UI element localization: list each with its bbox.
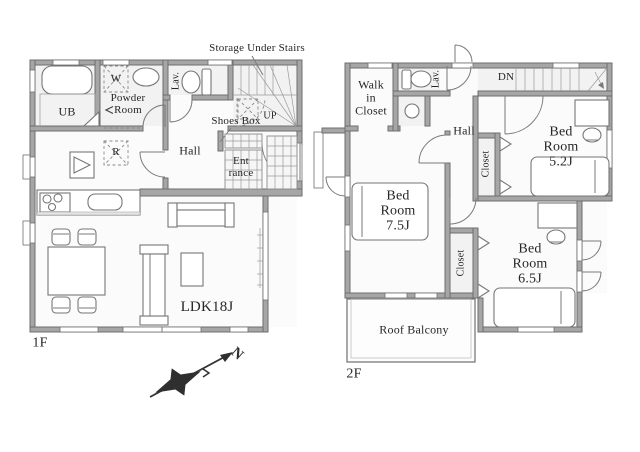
lav-label-2f: Lav. <box>432 70 443 88</box>
ub-label: UB <box>58 106 75 119</box>
floorplan-graphics <box>0 0 640 452</box>
bedroom-65-label: Bed Room 6.5J <box>512 241 547 286</box>
toilet-icon-2f <box>402 70 431 89</box>
sofa-horizontal-icon <box>168 203 234 227</box>
fridge-label: R <box>112 147 120 159</box>
closet-label-65: Closet <box>457 250 468 277</box>
bed-icon-65 <box>494 288 575 327</box>
storage-under-stairs-label: Storage Under Stairs <box>209 43 305 55</box>
floorplan-1f <box>23 56 323 332</box>
kitchen-counter-icon <box>37 190 140 215</box>
floorplan-image: Storage Under Stairs Lav. W UB Powder Ro… <box>0 0 640 452</box>
dn-label: DN <box>498 72 514 84</box>
roof-balcony-label: Roof Balcony <box>379 324 448 337</box>
entrance-label: Ent rance <box>229 156 254 180</box>
powder-room-label: Powder Room <box>111 93 146 117</box>
walk-in-closet-label: Walk in Closet <box>355 79 387 118</box>
sink-icon-2f <box>405 104 419 118</box>
up-label: UP <box>263 112 276 123</box>
porch-tiles <box>267 136 297 189</box>
bathtub-icon <box>42 66 92 94</box>
toilet-icon-1f <box>182 69 211 95</box>
floor2-label: 2F <box>346 366 361 381</box>
hall-label-1f: Hall <box>179 145 200 158</box>
ldk-label: LDK18J <box>181 299 234 315</box>
coffee-table-icon <box>181 253 203 286</box>
basin-icon <box>133 68 159 86</box>
compass-star-icon <box>155 368 200 395</box>
dining-table-icon <box>48 247 105 295</box>
cupboard-icon <box>70 152 94 178</box>
shoes-box-label: Shoes Box <box>211 116 260 128</box>
sofa-vertical-icon <box>140 245 168 325</box>
bedroom-75-label: Bed Room 7.5J <box>380 188 415 233</box>
hall-label-2f: Hall <box>453 125 474 138</box>
compass-rose <box>150 352 233 397</box>
lav-label-1f: Lav. <box>172 72 183 90</box>
floor1-label: 1F <box>32 335 47 350</box>
washer-label: W <box>111 74 122 86</box>
closet-label-52: Closet <box>482 151 493 178</box>
bedroom-52-label: Bed Room 5.2J <box>543 124 578 169</box>
shoes-box-icon <box>225 134 262 148</box>
